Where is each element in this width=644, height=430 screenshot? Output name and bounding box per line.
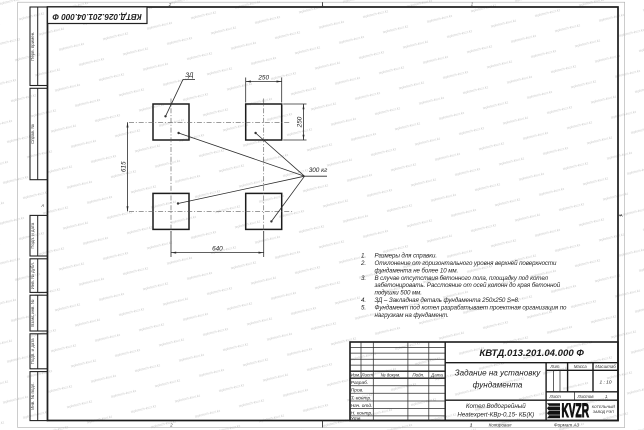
svg-text:teplotech-kvzr.kz: teplotech-kvzr.kz: [586, 135, 613, 145]
svg-text:teplotech-kvzr.kz: teplotech-kvzr.kz: [46, 384, 73, 394]
svg-text:teplotech-kvzr.kz: teplotech-kvzr.kz: [246, 97, 273, 107]
svg-text:Фундамент под котел разрабатыв: Фундамент под котел разрабатывает проект…: [375, 305, 568, 312]
svg-text:teplotech-kvzr.kz: teplotech-kvzr.kz: [334, 295, 361, 305]
svg-text:teplotech-kvzr.kz: teplotech-kvzr.kz: [0, 216, 25, 226]
svg-text:teplotech-kvzr.kz: teplotech-kvzr.kz: [214, 204, 241, 214]
svg-text:teplotech-kvzr.kz: teplotech-kvzr.kz: [118, 307, 145, 317]
svg-text:Изм.: Изм.: [351, 373, 361, 378]
svg-text:teplotech-kvzr.kz: teplotech-kvzr.kz: [134, 363, 161, 373]
svg-text:teplotech-kvzr.kz: teplotech-kvzr.kz: [454, 167, 481, 177]
svg-text:teplotech-kvzr.kz: teplotech-kvzr.kz: [298, 4, 325, 14]
svg-text:ЗД – Закладная деталь фундамен: ЗД – Закладная деталь фундамента 250х250…: [375, 297, 520, 304]
svg-text:teplotech-kvzr.kz: teplotech-kvzr.kz: [230, 260, 257, 270]
svg-text:1: 1: [470, 422, 473, 427]
svg-text:teplotech-kvzr.kz: teplotech-kvzr.kz: [382, 24, 409, 34]
svg-text:teplotech-kvzr.kz: teplotech-kvzr.kz: [306, 362, 333, 372]
svg-text:teplotech-kvzr.kz: teplotech-kvzr.kz: [198, 148, 225, 158]
svg-text:teplotech-kvzr.kz: teplotech-kvzr.kz: [306, 142, 333, 152]
svg-text:А: А: [40, 203, 44, 208]
svg-text:Задание на установку: Задание на установку: [455, 368, 542, 377]
svg-text:teplotech-kvzr.kz: teplotech-kvzr.kz: [490, 238, 517, 248]
svg-text:подушки 500 мм.: подушки 500 мм.: [375, 290, 422, 297]
svg-text:teplotech-kvzr.kz: teplotech-kvzr.kz: [362, 9, 389, 19]
svg-text:teplotech-kvzr.kz: teplotech-kvzr.kz: [38, 26, 65, 36]
svg-text:Масса: Масса: [574, 364, 588, 369]
svg-text:teplotech-kvzr.kz: teplotech-kvzr.kz: [626, 166, 644, 176]
svg-text:teplotech-kvzr.kz: teplotech-kvzr.kz: [470, 223, 497, 233]
svg-text:Отклонение от горизонтального: Отклонение от горизонтального уровня вер…: [375, 260, 557, 267]
svg-text:250: 250: [297, 116, 304, 128]
svg-text:teplotech-kvzr.kz: teplotech-kvzr.kz: [386, 423, 413, 430]
svg-text:teplotech-kvzr.kz: teplotech-kvzr.kz: [410, 397, 437, 407]
svg-text:teplotech-kvzr.kz: teplotech-kvzr.kz: [310, 101, 337, 111]
svg-text:teplotech-kvzr.kz: teplotech-kvzr.kz: [626, 385, 644, 395]
svg-text:teplotech-kvzr.kz: teplotech-kvzr.kz: [318, 239, 345, 249]
svg-text:teplotech-kvzr.kz: teplotech-kvzr.kz: [426, 14, 453, 24]
svg-text:teplotech-kvzr.kz: teplotech-kvzr.kz: [510, 34, 537, 44]
svg-text:teplotech-kvzr.kz: teplotech-kvzr.kz: [598, 13, 625, 23]
svg-text:teplotech-kvzr.kz: teplotech-kvzr.kz: [158, 337, 185, 347]
svg-text:Подп.: Подп.: [412, 373, 424, 378]
svg-text:teplotech-kvzr.kz: teplotech-kvzr.kz: [0, 379, 9, 389]
svg-text:Утв.: Утв.: [351, 416, 362, 422]
svg-text:teplotech-kvzr.kz: teplotech-kvzr.kz: [310, 321, 337, 331]
svg-text:teplotech-kvzr.kz: teplotech-kvzr.kz: [98, 292, 125, 302]
svg-text:teplotech-kvzr.kz: teplotech-kvzr.kz: [90, 374, 117, 384]
svg-text:teplotech-kvzr.kz: teplotech-kvzr.kz: [322, 418, 349, 428]
svg-text:teplotech-kvzr.kz: teplotech-kvzr.kz: [0, 119, 13, 129]
svg-text:teplotech-kvzr.kz: teplotech-kvzr.kz: [610, 329, 637, 339]
svg-text:teplotech-kvzr.kz: teplotech-kvzr.kz: [354, 91, 381, 101]
svg-text:teplotech-kvzr.kz: teplotech-kvzr.kz: [574, 38, 601, 48]
svg-text:teplotech-kvzr.kz: teplotech-kvzr.kz: [486, 59, 513, 69]
svg-text:Н. контр.: Н. контр.: [351, 410, 373, 416]
svg-text:teplotech-kvzr.kz: teplotech-kvzr.kz: [426, 233, 453, 243]
svg-text:teplotech-kvzr.kz: teplotech-kvzr.kz: [398, 80, 425, 90]
svg-text:teplotech-kvzr.kz: teplotech-kvzr.kz: [342, 214, 369, 224]
svg-text:Инв. № подл.: Инв. № подл.: [30, 382, 35, 409]
svg-text:teplotech-kvzr.kz: teplotech-kvzr.kz: [418, 96, 445, 106]
svg-text:teplotech-kvzr.kz: teplotech-kvzr.kz: [46, 164, 73, 174]
svg-text:teplotech-kvzr.kz: teplotech-kvzr.kz: [54, 83, 81, 93]
svg-text:teplotech-kvzr.kz: teplotech-kvzr.kz: [610, 110, 637, 120]
svg-text:teplotech-kvzr.kz: teplotech-kvzr.kz: [502, 115, 529, 125]
svg-text:teplotech-kvzr.kz: teplotech-kvzr.kz: [190, 230, 217, 240]
svg-text:teplotech-kvzr.kz: teplotech-kvzr.kz: [534, 228, 561, 238]
svg-text:teplotech-kvzr.kz: teplotech-kvzr.kz: [82, 236, 109, 246]
svg-text:teplotech-kvzr.kz: teplotech-kvzr.kz: [638, 263, 644, 273]
svg-text:teplotech-kvzr.kz: teplotech-kvzr.kz: [574, 258, 601, 268]
svg-text:teplotech-kvzr.kz: teplotech-kvzr.kz: [130, 404, 157, 414]
svg-text:КОТЕЛЬНЫЙ: КОТЕЛЬНЫЙ: [592, 405, 616, 409]
svg-text:teplotech-kvzr.kz: teplotech-kvzr.kz: [438, 330, 465, 340]
svg-text:teplotech-kvzr.kz: teplotech-kvzr.kz: [502, 335, 529, 345]
svg-text:teplotech-kvzr.kz: teplotech-kvzr.kz: [530, 49, 557, 59]
svg-text:teplotech-kvzr.kz: teplotech-kvzr.kz: [14, 272, 41, 282]
svg-text:teplotech-kvzr.kz: teplotech-kvzr.kz: [370, 147, 397, 157]
svg-text:КВТД.026.201.04.000 Ф: КВТД.026.201.04.000 Ф: [52, 12, 142, 21]
svg-text:teplotech-kvzr.kz: teplotech-kvzr.kz: [298, 224, 325, 234]
svg-text:teplotech-kvzr.kz: teplotech-kvzr.kz: [478, 141, 505, 151]
svg-text:Копировал: Копировал: [489, 422, 512, 427]
svg-text:teplotech-kvzr.kz: teplotech-kvzr.kz: [598, 232, 625, 242]
svg-text:КВТД.013.201.04.000 Ф: КВТД.013.201.04.000 Ф: [479, 348, 584, 359]
svg-text:Справ. №: Справ. №: [30, 124, 35, 144]
svg-text:teplotech-kvzr.kz: teplotech-kvzr.kz: [290, 306, 317, 316]
svg-text:забетонировать. Расстояние от: забетонировать. Расстояние от осей колон…: [374, 282, 561, 289]
svg-text:teplotech-kvzr.kz: teplotech-kvzr.kz: [250, 56, 277, 66]
svg-text:teplotech-kvzr.kz: teplotech-kvzr.kz: [326, 157, 353, 167]
svg-text:teplotech-kvzr.kz: teplotech-kvzr.kz: [202, 327, 229, 337]
svg-text:teplotech-kvzr.kz: teplotech-kvzr.kz: [422, 55, 449, 65]
svg-text:teplotech-kvzr.kz: teplotech-kvzr.kz: [274, 30, 301, 40]
svg-text:teplotech-kvzr.kz: teplotech-kvzr.kz: [402, 39, 429, 49]
svg-text:teplotech-kvzr.kz: teplotech-kvzr.kz: [194, 409, 221, 419]
svg-text:teplotech-kvzr.kz: teplotech-kvzr.kz: [174, 393, 201, 403]
svg-text:teplotech-kvzr.kz: teplotech-kvzr.kz: [250, 275, 277, 285]
svg-text:teplotech-kvzr.kz: teplotech-kvzr.kz: [302, 403, 329, 413]
svg-text:teplotech-kvzr.kz: teplotech-kvzr.kz: [142, 62, 169, 72]
svg-text:teplotech-kvzr.kz: teplotech-kvzr.kz: [86, 414, 113, 424]
svg-text:teplotech-kvzr.kz: teplotech-kvzr.kz: [638, 43, 644, 53]
svg-text:teplotech-kvzr.kz: teplotech-kvzr.kz: [526, 90, 553, 100]
svg-text:teplotech-kvzr.kz: teplotech-kvzr.kz: [314, 280, 341, 290]
svg-text:teplotech-kvzr.kz: teplotech-kvzr.kz: [6, 354, 33, 364]
svg-text:teplotech-kvzr.kz: teplotech-kvzr.kz: [562, 381, 589, 391]
svg-text:teplotech-kvzr.kz: teplotech-kvzr.kz: [182, 92, 209, 102]
svg-text:teplotech-kvzr.kz: teplotech-kvzr.kz: [410, 177, 437, 187]
svg-text:250: 250: [257, 75, 269, 82]
svg-text:А: А: [619, 213, 623, 218]
svg-text:teplotech-kvzr.kz: teplotech-kvzr.kz: [270, 71, 297, 81]
svg-text:teplotech-kvzr.kz: teplotech-kvzr.kz: [102, 251, 129, 261]
svg-text:teplotech-kvzr.kz: teplotech-kvzr.kz: [494, 197, 521, 207]
svg-text:teplotech-kvzr.kz: teplotech-kvzr.kz: [558, 202, 585, 212]
svg-text:teplotech-kvzr.kz: teplotech-kvzr.kz: [0, 22, 1, 32]
svg-text:teplotech-kvzr.kz: teplotech-kvzr.kz: [566, 120, 593, 130]
svg-text:Лист: Лист: [360, 373, 373, 378]
svg-text:teplotech-kvzr.kz: teplotech-kvzr.kz: [462, 85, 489, 95]
svg-text:teplotech-kvzr.kz: teplotech-kvzr.kz: [294, 265, 321, 275]
svg-text:teplotech-kvzr.kz: teplotech-kvzr.kz: [390, 162, 417, 172]
svg-text:teplotech-kvzr.kz: teplotech-kvzr.kz: [190, 10, 217, 20]
svg-text:фундамента не более 10 мм.: фундамента не более 10 мм.: [375, 267, 459, 274]
svg-text:Листов: Листов: [577, 394, 595, 399]
svg-text:teplotech-kvzr.kz: teplotech-kvzr.kz: [42, 205, 69, 215]
svg-text:Т. контр.: Т. контр.: [351, 395, 372, 401]
svg-text:teplotech-kvzr.kz: teplotech-kvzr.kz: [474, 182, 501, 192]
svg-text:Подп. и дата: Подп. и дата: [30, 222, 35, 248]
svg-text:teplotech-kvzr.kz: teplotech-kvzr.kz: [102, 31, 129, 41]
svg-text:teplotech-kvzr.kz: teplotech-kvzr.kz: [186, 51, 213, 61]
svg-text:teplotech-kvzr.kz: teplotech-kvzr.kz: [154, 159, 181, 169]
svg-text:teplotech-kvzr.kz: teplotech-kvzr.kz: [0, 0, 25, 6]
svg-text:teplotech-kvzr.kz: teplotech-kvzr.kz: [146, 21, 173, 31]
svg-text:300 кг: 300 кг: [309, 167, 328, 174]
svg-text:teplotech-kvzr.kz: teplotech-kvzr.kz: [2, 175, 29, 185]
svg-text:teplotech-kvzr.kz: teplotech-kvzr.kz: [542, 146, 569, 156]
svg-text:teplotech-kvzr.kz: teplotech-kvzr.kz: [326, 377, 353, 387]
svg-text:teplotech-kvzr.kz: teplotech-kvzr.kz: [222, 342, 249, 352]
svg-text:teplotech-kvzr.kz: teplotech-kvzr.kz: [506, 75, 533, 85]
svg-text:teplotech-kvzr.kz: teplotech-kvzr.kz: [254, 235, 281, 245]
svg-text:teplotech-kvzr.kz: teplotech-kvzr.kz: [374, 326, 401, 336]
svg-text:teplotech-kvzr.kz: teplotech-kvzr.kz: [570, 299, 597, 309]
svg-text:teplotech-kvzr.kz: teplotech-kvzr.kz: [606, 370, 633, 380]
svg-text:5.: 5.: [361, 305, 366, 312]
svg-text:teplotech-kvzr.kz: teplotech-kvzr.kz: [622, 426, 644, 430]
svg-text:teplotech-kvzr.kz: teplotech-kvzr.kz: [242, 357, 269, 367]
svg-text:teplotech-kvzr.kz: teplotech-kvzr.kz: [490, 18, 517, 28]
svg-text:Heatexpert-КВр-0,15- КБ(К): Heatexpert-КВр-0,15- КБ(К): [457, 412, 534, 419]
svg-text:teplotech-kvzr.kz: teplotech-kvzr.kz: [470, 3, 497, 13]
svg-text:teplotech-kvzr.kz: teplotech-kvzr.kz: [362, 229, 389, 239]
svg-text:teplotech-kvzr.kz: teplotech-kvzr.kz: [14, 52, 41, 62]
svg-text:teplotech-kvzr.kz: teplotech-kvzr.kz: [230, 41, 257, 51]
svg-text:teplotech-kvzr.kz: teplotech-kvzr.kz: [630, 125, 644, 135]
svg-text:teplotech-kvzr.kz: teplotech-kvzr.kz: [498, 156, 525, 166]
svg-text:teplotech-kvzr.kz: teplotech-kvzr.kz: [0, 241, 1, 251]
svg-text:Дата: Дата: [430, 373, 443, 378]
svg-text:teplotech-kvzr.kz: teplotech-kvzr.kz: [218, 383, 245, 393]
svg-text:teplotech-kvzr.kz: teplotech-kvzr.kz: [538, 187, 565, 197]
svg-text:teplotech-kvzr.kz: teplotech-kvzr.kz: [170, 215, 197, 225]
svg-text:teplotech-kvzr.kz: teplotech-kvzr.kz: [350, 132, 377, 142]
svg-text:4.: 4.: [361, 297, 366, 304]
svg-text:teplotech-kvzr.kz: teplotech-kvzr.kz: [0, 298, 17, 308]
svg-text:teplotech-kvzr.kz: teplotech-kvzr.kz: [482, 100, 509, 110]
svg-text:640: 640: [212, 245, 223, 252]
svg-text:teplotech-kvzr.kz: teplotech-kvzr.kz: [266, 112, 293, 122]
svg-text:teplotech-kvzr.kz: teplotech-kvzr.kz: [246, 316, 273, 326]
svg-text:teplotech-kvzr.kz: teplotech-kvzr.kz: [262, 372, 289, 382]
svg-text:teplotech-kvzr.kz: teplotech-kvzr.kz: [78, 57, 105, 67]
svg-text:teplotech-kvzr.kz: teplotech-kvzr.kz: [50, 123, 77, 133]
svg-text:teplotech-kvzr.kz: teplotech-kvzr.kz: [546, 325, 573, 335]
svg-text:teplotech-kvzr.kz: teplotech-kvzr.kz: [622, 207, 644, 217]
svg-text:teplotech-kvzr.kz: teplotech-kvzr.kz: [458, 126, 485, 136]
svg-text:teplotech-kvzr.kz: teplotech-kvzr.kz: [554, 23, 581, 33]
svg-text:teplotech-kvzr.kz: teplotech-kvzr.kz: [514, 212, 541, 222]
svg-text:teplotech-kvzr.kz: teplotech-kvzr.kz: [0, 420, 5, 430]
svg-text:teplotech-kvzr.kz: teplotech-kvzr.kz: [414, 136, 441, 146]
svg-text:teplotech-kvzr.kz: teplotech-kvzr.kz: [226, 81, 253, 91]
svg-text:teplotech-kvzr.kz: teplotech-kvzr.kz: [554, 243, 581, 253]
svg-text:teplotech-kvzr.kz: teplotech-kvzr.kz: [162, 296, 189, 306]
svg-text:teplotech-kvzr.kz: teplotech-kvzr.kz: [330, 117, 357, 127]
svg-text:teplotech-kvzr.kz: teplotech-kvzr.kz: [266, 332, 293, 342]
svg-text:teplotech-kvzr.kz: teplotech-kvzr.kz: [446, 249, 473, 259]
svg-text:teplotech-kvzr.kz: teplotech-kvzr.kz: [178, 353, 205, 363]
svg-text:Перв. примен.: Перв. примен.: [30, 32, 35, 61]
svg-text:teplotech-kvzr.kz: teplotech-kvzr.kz: [442, 70, 469, 80]
svg-text:teplotech-kvzr.kz: teplotech-kvzr.kz: [262, 153, 289, 163]
svg-text:teplotech-kvzr.kz: teplotech-kvzr.kz: [226, 301, 253, 311]
svg-text:teplotech-kvzr.kz: teplotech-kvzr.kz: [22, 190, 49, 200]
svg-text:Размеры для справки.: Размеры для справки.: [375, 252, 437, 259]
svg-text:teplotech-kvzr.kz: teplotech-kvzr.kz: [18, 11, 45, 21]
svg-text:teplotech-kvzr.kz: teplotech-kvzr.kz: [438, 111, 465, 121]
svg-text:teplotech-kvzr.kz: teplotech-kvzr.kz: [258, 194, 285, 204]
svg-text:teplotech-kvzr.kz: teplotech-kvzr.kz: [78, 277, 105, 287]
svg-text:teplotech-kvzr.kz: teplotech-kvzr.kz: [66, 399, 93, 409]
svg-text:teplotech-kvzr.kz: teplotech-kvzr.kz: [74, 317, 101, 327]
svg-text:teplotech-kvzr.kz: teplotech-kvzr.kz: [290, 86, 317, 96]
svg-text:teplotech-kvzr.kz: teplotech-kvzr.kz: [50, 343, 77, 353]
svg-text:teplotech-kvzr.kz: teplotech-kvzr.kz: [0, 78, 17, 88]
svg-text:teplotech-kvzr.kz: teplotech-kvzr.kz: [446, 29, 473, 39]
svg-text:Лист: Лист: [549, 394, 562, 399]
svg-text:teplotech-kvzr.kz: teplotech-kvzr.kz: [174, 174, 201, 184]
svg-text:teplotech-kvzr.kz: teplotech-kvzr.kz: [286, 347, 313, 357]
svg-text:teplotech-kvzr.kz: teplotech-kvzr.kz: [98, 72, 125, 82]
svg-text:teplotech-kvzr.kz: teplotech-kvzr.kz: [546, 105, 573, 115]
svg-text:teplotech-kvzr.kz: teplotech-kvzr.kz: [10, 93, 37, 103]
svg-text:1 : 10: 1 : 10: [599, 380, 611, 386]
svg-text:teplotech-kvzr.kz: teplotech-kvzr.kz: [522, 131, 549, 141]
svg-text:teplotech-kvzr.kz: teplotech-kvzr.kz: [150, 199, 177, 209]
svg-text:teplotech-kvzr.kz: teplotech-kvzr.kz: [90, 154, 117, 164]
svg-text:teplotech-kvzr.kz: teplotech-kvzr.kz: [58, 261, 85, 271]
svg-text:teplotech-kvzr.kz: teplotech-kvzr.kz: [618, 28, 644, 38]
svg-text:teplotech-kvzr.kz: teplotech-kvzr.kz: [630, 345, 644, 355]
svg-text:teplotech-kvzr.kz: teplotech-kvzr.kz: [202, 107, 229, 117]
svg-text:Пров.: Пров.: [351, 388, 364, 394]
svg-text:teplotech-kvzr.kz: teplotech-kvzr.kz: [154, 378, 181, 388]
svg-text:teplotech-kvzr.kz: teplotech-kvzr.kz: [374, 106, 401, 116]
svg-text:teplotech-kvzr.kz: teplotech-kvzr.kz: [378, 65, 405, 75]
svg-text:teplotech-kvzr.kz: teplotech-kvzr.kz: [158, 118, 185, 128]
svg-text:teplotech-kvzr.kz: teplotech-kvzr.kz: [286, 127, 313, 137]
svg-text:teplotech-kvzr.kz: teplotech-kvzr.kz: [334, 76, 361, 86]
svg-text:Лит.: Лит.: [549, 364, 560, 369]
svg-text:teplotech-kvzr.kz: teplotech-kvzr.kz: [62, 220, 89, 230]
svg-text:KVZR: KVZR: [562, 401, 590, 422]
svg-text:teplotech-kvzr.kz: teplotech-kvzr.kz: [254, 15, 281, 25]
svg-text:teplotech-kvzr.kz: teplotech-kvzr.kz: [218, 163, 245, 173]
svg-text:teplotech-kvzr.kz: teplotech-kvzr.kz: [118, 87, 145, 97]
svg-text:teplotech-kvzr.kz: teplotech-kvzr.kz: [294, 45, 321, 55]
svg-text:teplotech-kvzr.kz: teplotech-kvzr.kz: [94, 113, 121, 123]
svg-text:teplotech-kvzr.kz: teplotech-kvzr.kz: [274, 250, 301, 260]
svg-text:teplotech-kvzr.kz: teplotech-kvzr.kz: [394, 121, 421, 131]
svg-text:teplotech-kvzr.kz: teplotech-kvzr.kz: [166, 256, 193, 266]
svg-text:teplotech-kvzr.kz: teplotech-kvzr.kz: [0, 201, 5, 211]
svg-text:teplotech-kvzr.kz: teplotech-kvzr.kz: [74, 98, 101, 108]
svg-text:Масштаб: Масштаб: [595, 364, 616, 369]
svg-text:teplotech-kvzr.kz: teplotech-kvzr.kz: [70, 358, 97, 368]
svg-text:teplotech-kvzr.kz: teplotech-kvzr.kz: [126, 225, 153, 235]
svg-text:ЗД: ЗД: [185, 72, 194, 79]
svg-text:teplotech-kvzr.kz: teplotech-kvzr.kz: [594, 273, 621, 283]
svg-text:teplotech-kvzr.kz: teplotech-kvzr.kz: [86, 195, 113, 205]
svg-text:teplotech-kvzr.kz: teplotech-kvzr.kz: [122, 266, 149, 276]
svg-text:teplotech-kvzr.kz: teplotech-kvzr.kz: [314, 60, 341, 70]
svg-text:teplotech-kvzr.kz: teplotech-kvzr.kz: [282, 388, 309, 398]
svg-text:teplotech-kvzr.kz: teplotech-kvzr.kz: [214, 424, 241, 430]
svg-text:teplotech-kvzr.kz: teplotech-kvzr.kz: [238, 398, 265, 408]
svg-text:teplotech-kvzr.kz: teplotech-kvzr.kz: [570, 79, 597, 89]
svg-text:teplotech-kvzr.kz: teplotech-kvzr.kz: [110, 389, 137, 399]
svg-text:teplotech-kvzr.kz: teplotech-kvzr.kz: [270, 291, 297, 301]
svg-text:teplotech-kvzr.kz: teplotech-kvzr.kz: [346, 173, 373, 183]
svg-text:1.: 1.: [361, 252, 366, 259]
svg-text:teplotech-kvzr.kz: teplotech-kvzr.kz: [30, 328, 57, 338]
svg-text:Котел Водогрейный: Котел Водогрейный: [466, 403, 526, 410]
svg-text:teplotech-kvzr.kz: teplotech-kvzr.kz: [358, 50, 385, 60]
svg-text:teplotech-kvzr.kz: teplotech-kvzr.kz: [134, 143, 161, 153]
svg-text:teplotech-kvzr.kz: teplotech-kvzr.kz: [22, 410, 49, 420]
svg-text:teplotech-kvzr.kz: teplotech-kvzr.kz: [198, 368, 225, 378]
svg-text:teplotech-kvzr.kz: teplotech-kvzr.kz: [30, 108, 57, 118]
svg-text:teplotech-kvzr.kz: teplotech-kvzr.kz: [222, 122, 249, 132]
svg-text:teplotech-kvzr.kz: teplotech-kvzr.kz: [146, 240, 173, 250]
svg-text:teplotech-kvzr.kz: teplotech-kvzr.kz: [414, 356, 441, 366]
svg-text:teplotech-kvzr.kz: teplotech-kvzr.kz: [430, 193, 457, 203]
svg-text:teplotech-kvzr.kz: teplotech-kvzr.kz: [182, 312, 209, 322]
svg-text:teplotech-kvzr.kz: teplotech-kvzr.kz: [406, 218, 433, 228]
svg-text:teplotech-kvzr.kz: teplotech-kvzr.kz: [318, 20, 345, 30]
svg-text:teplotech-kvzr.kz: teplotech-kvzr.kz: [94, 333, 121, 343]
svg-text:teplotech-kvzr.kz: teplotech-kvzr.kz: [634, 304, 644, 314]
svg-text:Нач. отд.: Нач. отд.: [351, 403, 373, 409]
svg-text:teplotech-kvzr.kz: teplotech-kvzr.kz: [106, 210, 133, 220]
svg-text:teplotech-kvzr.kz: teplotech-kvzr.kz: [0, 160, 9, 170]
svg-text:teplotech-kvzr.kz: teplotech-kvzr.kz: [114, 348, 141, 358]
svg-text:фундамента: фундамента: [473, 380, 523, 389]
svg-text:teplotech-kvzr.kz: teplotech-kvzr.kz: [54, 302, 81, 312]
svg-text:ЗАВОД РЭП: ЗАВОД РЭП: [593, 410, 614, 414]
svg-text:teplotech-kvzr.kz: teplotech-kvzr.kz: [606, 151, 633, 161]
svg-text:teplotech-kvzr.kz: teplotech-kvzr.kz: [582, 176, 609, 186]
svg-text:teplotech-kvzr.kz: teplotech-kvzr.kz: [578, 217, 605, 227]
svg-text:№ докум.: № докум.: [381, 373, 401, 378]
svg-text:teplotech-kvzr.kz: teplotech-kvzr.kz: [322, 198, 349, 208]
svg-text:teplotech-kvzr.kz: teplotech-kvzr.kz: [386, 203, 413, 213]
svg-text:teplotech-kvzr.kz: teplotech-kvzr.kz: [234, 0, 261, 10]
svg-text:teplotech-kvzr.kz: teplotech-kvzr.kz: [338, 35, 365, 45]
svg-text:teplotech-kvzr.kz: teplotech-kvzr.kz: [590, 94, 617, 104]
svg-text:teplotech-kvzr.kz: teplotech-kvzr.kz: [302, 183, 329, 193]
svg-text:teplotech-kvzr.kz: teplotech-kvzr.kz: [0, 338, 13, 348]
svg-text:teplotech-kvzr.kz: teplotech-kvzr.kz: [166, 36, 193, 46]
svg-text:teplotech-kvzr.kz: teplotech-kvzr.kz: [66, 180, 93, 190]
svg-text:нагрузкам на фундамент.: нагрузкам на фундамент.: [375, 312, 449, 319]
svg-text:teplotech-kvzr.kz: teplotech-kvzr.kz: [562, 161, 589, 171]
svg-text:teplotech-kvzr.kz: teplotech-kvzr.kz: [206, 66, 233, 76]
svg-text:3.: 3.: [361, 275, 366, 282]
svg-text:teplotech-kvzr.kz: teplotech-kvzr.kz: [634, 84, 644, 94]
svg-text:teplotech-kvzr.kz: teplotech-kvzr.kz: [482, 320, 509, 330]
svg-text:teplotech-kvzr.kz: teplotech-kvzr.kz: [210, 25, 237, 35]
svg-text:teplotech-kvzr.kz: teplotech-kvzr.kz: [186, 271, 213, 281]
svg-text:Разраб.: Разраб.: [351, 380, 368, 386]
svg-text:teplotech-kvzr.kz: teplotech-kvzr.kz: [366, 188, 393, 198]
svg-text:teplotech-kvzr.kz: teplotech-kvzr.kz: [58, 42, 85, 52]
svg-text:teplotech-kvzr.kz: teplotech-kvzr.kz: [594, 54, 621, 64]
svg-text:teplotech-kvzr.kz: teplotech-kvzr.kz: [206, 286, 233, 296]
svg-text:teplotech-kvzr.kz: teplotech-kvzr.kz: [142, 281, 169, 291]
svg-text:teplotech-kvzr.kz: teplotech-kvzr.kz: [138, 322, 165, 332]
svg-text:615: 615: [120, 161, 127, 172]
svg-text:teplotech-kvzr.kz: teplotech-kvzr.kz: [434, 152, 461, 162]
svg-text:В случае отсутствия бетонного: В случае отсутствия бетонного пола, площ…: [375, 275, 549, 282]
svg-text:Взам. инв. №: Взам. инв. №: [30, 299, 35, 326]
svg-text:teplotech-kvzr.kz: teplotech-kvzr.kz: [234, 219, 261, 229]
svg-text:Подп. и дата: Подп. и дата: [30, 338, 35, 364]
svg-text:teplotech-kvzr.kz: teplotech-kvzr.kz: [258, 413, 285, 423]
svg-text:teplotech-kvzr.kz: teplotech-kvzr.kz: [122, 46, 149, 56]
